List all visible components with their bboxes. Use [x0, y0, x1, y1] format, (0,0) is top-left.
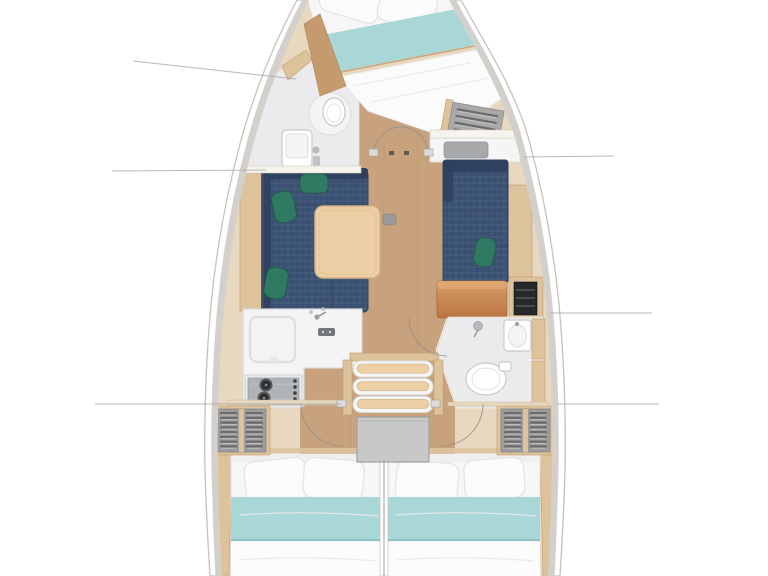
teal-blanket: [231, 497, 380, 540]
pillow: [463, 457, 526, 501]
table-leaf-clamp: [383, 214, 396, 225]
door-leaf: [424, 149, 433, 156]
pillow: [302, 457, 365, 501]
aft-locker-port: [213, 406, 270, 455]
aft-cabins: [214, 448, 558, 576]
salon-table: [315, 206, 380, 278]
door-leaf: [431, 400, 440, 407]
aft-cabin-bed-port: [231, 454, 380, 576]
companionway-stairs: [353, 361, 433, 413]
door-latch: [389, 151, 394, 155]
companionway: [343, 353, 443, 462]
door-leaf: [369, 149, 378, 156]
companionway-sill: [350, 353, 438, 361]
aft-cabin-bed-starboard: [388, 454, 540, 576]
green-cushion: [300, 174, 328, 193]
aft-locker-starboard: [497, 406, 554, 455]
door-latch: [404, 151, 409, 155]
nav-station: [437, 277, 543, 321]
forward-faucet: [313, 147, 320, 154]
floor-plan-svg: [0, 0, 768, 576]
engine-box: [357, 417, 429, 462]
teal-blanket: [388, 497, 540, 540]
settee-starboard: [430, 138, 532, 283]
aft-head: [437, 318, 545, 407]
burner: [260, 379, 273, 392]
yacht-floor-plan: [0, 0, 768, 576]
